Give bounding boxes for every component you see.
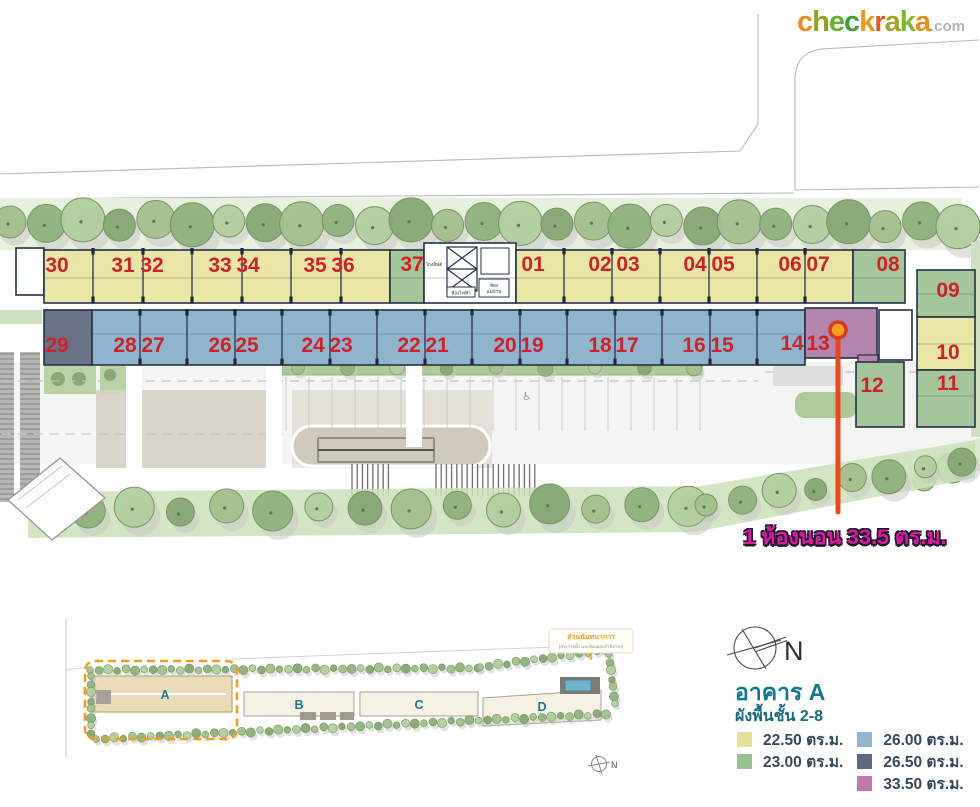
unit-number: 27 — [141, 334, 164, 357]
club-sublabel: (สระว่ายน้ำ และห้องออกกำลังกาย) — [559, 643, 624, 649]
unit-numbers-bottom: 29 28 27 26 25 24 23 22 21 20 19 18 17 1… — [45, 332, 829, 357]
logo-letter: k — [859, 6, 874, 38]
legend-swatch — [857, 732, 872, 747]
legend-label: 23.00 ตร.ม. — [763, 749, 843, 774]
unit-number: 23 — [329, 334, 352, 357]
unit-number: 19 — [520, 334, 543, 357]
unit-number: 32 — [140, 254, 163, 277]
club-label: ส่วนนันทนาการ — [567, 633, 615, 641]
unit-number: 29 — [45, 334, 68, 357]
legend-item: 26.00 ตร.ม. — [857, 732, 963, 747]
unit-number: 02 — [588, 253, 611, 276]
unit-13-annotation: 1 ห้องนอน 33.5 ตร.ม. — [728, 520, 962, 554]
compass-n-label: N — [784, 636, 804, 666]
logo-suffix: .com — [930, 18, 965, 35]
legend-item: 22.50 ตร.ม. — [737, 732, 843, 747]
unit-number: 21 — [425, 334, 449, 357]
unit-number: 30 — [45, 254, 68, 277]
logo-letter: e — [829, 6, 844, 38]
unit-number: 04 — [683, 253, 707, 276]
logo-letter: c — [844, 6, 859, 38]
accessible-parking-icon: ♿ — [522, 391, 532, 403]
unit-number: 20 — [493, 334, 516, 357]
unit-number: 11 — [937, 372, 960, 395]
floor-subtitle: ผังพื้นชั้น 2-8 — [735, 704, 823, 729]
logo-letter: h — [812, 6, 829, 38]
legend-swatch — [857, 776, 872, 791]
legend-label: 33.50 ตร.ม. — [883, 771, 963, 796]
unit-number: 06 — [778, 253, 801, 276]
core-label-electrical: ห้องไฟฟ้า — [451, 290, 471, 296]
core-label-maid-2: แม่บ้าน — [487, 289, 502, 294]
legend-swatch — [737, 732, 752, 747]
unit-number: 14 — [780, 332, 804, 355]
unit-number: 17 — [615, 334, 638, 357]
unit-number: 10 — [936, 341, 959, 364]
unit-number: 13 — [806, 332, 829, 355]
unit-number: 36 — [331, 254, 354, 277]
floorplan-page: ♿ — [0, 0, 980, 807]
driveway — [96, 390, 492, 468]
unit-number: 25 — [235, 334, 259, 357]
unit-number: 33 — [208, 254, 231, 277]
legend-item: 33.50 ตร.ม. — [857, 776, 963, 791]
overview-label-b: B — [294, 698, 303, 712]
unit-number: 05 — [711, 253, 735, 276]
unit-number: 16 — [682, 334, 705, 357]
legend-item: 26.50 ตร.ม. — [857, 754, 963, 769]
north-compass-icon — [727, 627, 787, 669]
core-label-elevator: โถงลิฟต์ — [426, 261, 443, 267]
unit-number: 35 — [303, 254, 327, 277]
logo-letter: r — [874, 6, 884, 38]
unit-number: 07 — [806, 253, 829, 276]
unit-number: 15 — [710, 334, 734, 357]
overview-label-a: A — [160, 688, 169, 702]
legend-item: 23.00 ตร.ม. — [737, 754, 843, 769]
unit-number: 01 — [521, 253, 545, 276]
core-label-maid-1: ห้อง — [490, 283, 498, 288]
unit-number: 24 — [301, 334, 325, 357]
overview-label-c: C — [414, 698, 423, 712]
unit-number: 37 — [400, 253, 423, 276]
unit-number: 26 — [208, 334, 231, 357]
unit-number: 31 — [111, 254, 135, 277]
overview-site-plan: A B C D ส่วนนันทนาการ (สระว่ายน้ำ และห้อ… — [66, 618, 633, 774]
logo-letter: k — [900, 6, 915, 38]
overview-hedge — [606, 651, 621, 711]
unit-number: 12 — [860, 374, 883, 397]
checkraka-logo: checkraka.com — [797, 6, 965, 39]
unit-number: 09 — [936, 279, 959, 302]
unit-number: 08 — [876, 253, 900, 276]
unit-number: 28 — [113, 334, 137, 357]
overview-compass-icon — [588, 755, 610, 774]
unit-number: 03 — [616, 253, 639, 276]
legend: 22.50 ตร.ม. 23.00 ตร.ม. 26.00 ตร.ม. 26.5… — [737, 732, 964, 798]
legend-column-2: 26.00 ตร.ม. 26.50 ตร.ม. 33.50 ตร.ม. — [857, 732, 963, 798]
overview-compass-n: N — [611, 760, 618, 770]
site-plan-drawing: ♿ — [0, 0, 980, 807]
legend-swatch — [737, 754, 752, 769]
club-label-card — [549, 629, 633, 653]
logo-letter: a — [885, 6, 900, 38]
legend-column-1: 22.50 ตร.ม. 23.00 ตร.ม. — [737, 732, 843, 798]
unit-number: 18 — [588, 334, 612, 357]
unit-number: 34 — [236, 254, 260, 277]
logo-letter: c — [797, 6, 812, 38]
overview-label-d: D — [537, 700, 546, 714]
legend-swatch — [857, 754, 872, 769]
overview-pool — [565, 680, 591, 691]
unit-number: 22 — [397, 334, 420, 357]
overview-structures — [300, 712, 354, 720]
logo-letter: a — [915, 6, 930, 38]
